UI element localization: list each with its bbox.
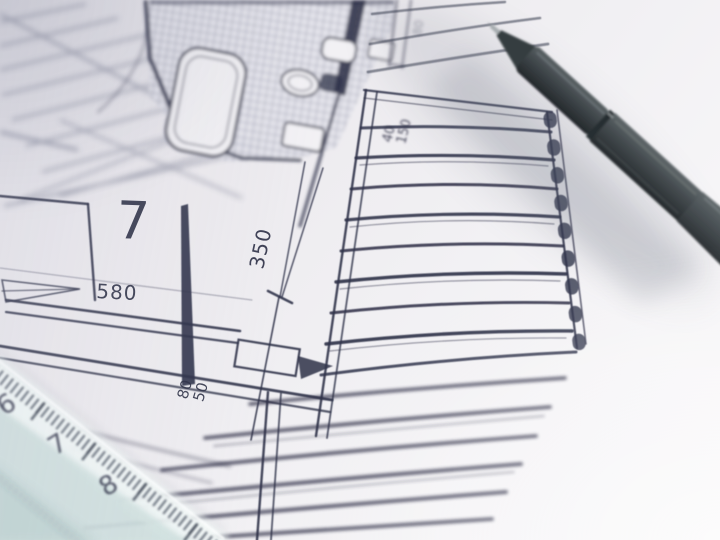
- wall-section-fill: [181, 204, 195, 386]
- room-seven-part: [6, 300, 240, 331]
- blueprint-photo: 7 580 350 80 50 40 150 80 6 7 8: [0, 0, 720, 540]
- scene: 7 580 350 80 50 40 150 80 6 7 8: [0, 0, 720, 540]
- bathroom: [146, 0, 395, 226]
- room-number: 7: [116, 191, 151, 252]
- dimension-label-50: 50: [189, 380, 212, 403]
- dimension-label-150: 150: [394, 118, 415, 146]
- deck-planks-part: [321, 352, 576, 375]
- deck-planks-part: [340, 280, 560, 289]
- staircase-part: [0, 4, 86, 22]
- deck-planks-part: [350, 221, 554, 227]
- dimension-stack-40-150: 40 150: [380, 114, 415, 147]
- room-seven-part: [282, 168, 323, 297]
- bathroom-part: [150, 0, 394, 5]
- dimension-label-350: 350: [244, 226, 276, 271]
- deck-planks-part: [341, 244, 563, 251]
- deck-planks-part: [271, 393, 281, 540]
- room-seven-part: [268, 291, 292, 303]
- room-seven-part: [280, 162, 305, 297]
- deck-planks-part: [331, 302, 569, 313]
- deck-planks-part: [257, 392, 268, 540]
- deck-planks-lower-part: [162, 436, 536, 470]
- deck-planks-lower-part: [250, 378, 565, 404]
- room-seven-part: [88, 204, 95, 300]
- dimension-label-580: 580: [96, 279, 138, 305]
